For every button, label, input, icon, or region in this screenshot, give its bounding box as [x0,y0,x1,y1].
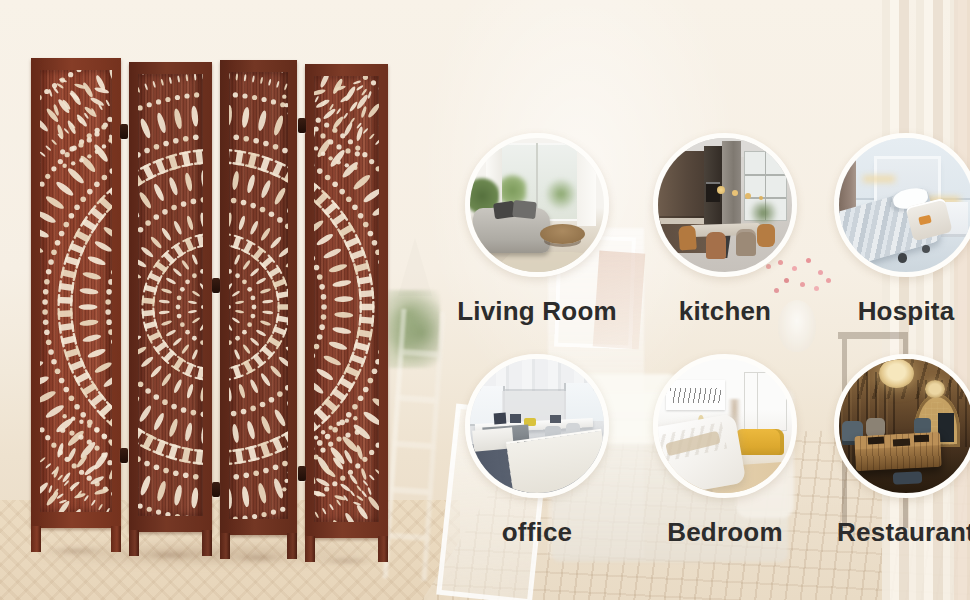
bedroom-label: Bedroom [667,517,783,548]
office-photo [465,354,609,498]
panel-hinge [120,448,128,463]
room-item-hospital: Hospita [834,133,970,277]
panel-hinge [120,124,128,139]
leg-shadow [131,550,210,560]
ghost-plant-hanger [398,238,432,296]
room-item-bedroom: Bedroom [653,354,797,498]
living-room-label: Living Room [457,296,617,327]
room-item-kitchen: kitchen [653,133,797,277]
hospital-photo [834,133,970,277]
living-room-photo [465,133,609,277]
panel-hinge [212,482,220,497]
office-label: office [502,517,573,548]
kitchen-label: kitchen [679,296,771,327]
panel-hinge [298,118,306,133]
leg-shadow [222,553,295,563]
product-banner: Living Room kitchen Hospita office [0,0,970,600]
panel-hinge [298,466,306,481]
bedroom-photo [653,354,797,498]
room-item-office: office [465,354,609,498]
kitchen-photo [653,133,797,277]
divider-panel-2 [129,62,212,532]
restaurant-photo [834,354,970,498]
divider-panel-3 [220,60,297,535]
leg-shadow [33,546,119,556]
divider-panel-1 [31,58,121,528]
panel-hinge [212,278,220,293]
leg-shadow [307,556,386,566]
divider-panel-4 [305,64,388,538]
room-item-restaurant: Restaurant [834,354,970,498]
hospital-label: Hospita [858,296,955,327]
restaurant-label: Restaurant [837,517,970,548]
room-item-living-room: Living Room [465,133,609,277]
